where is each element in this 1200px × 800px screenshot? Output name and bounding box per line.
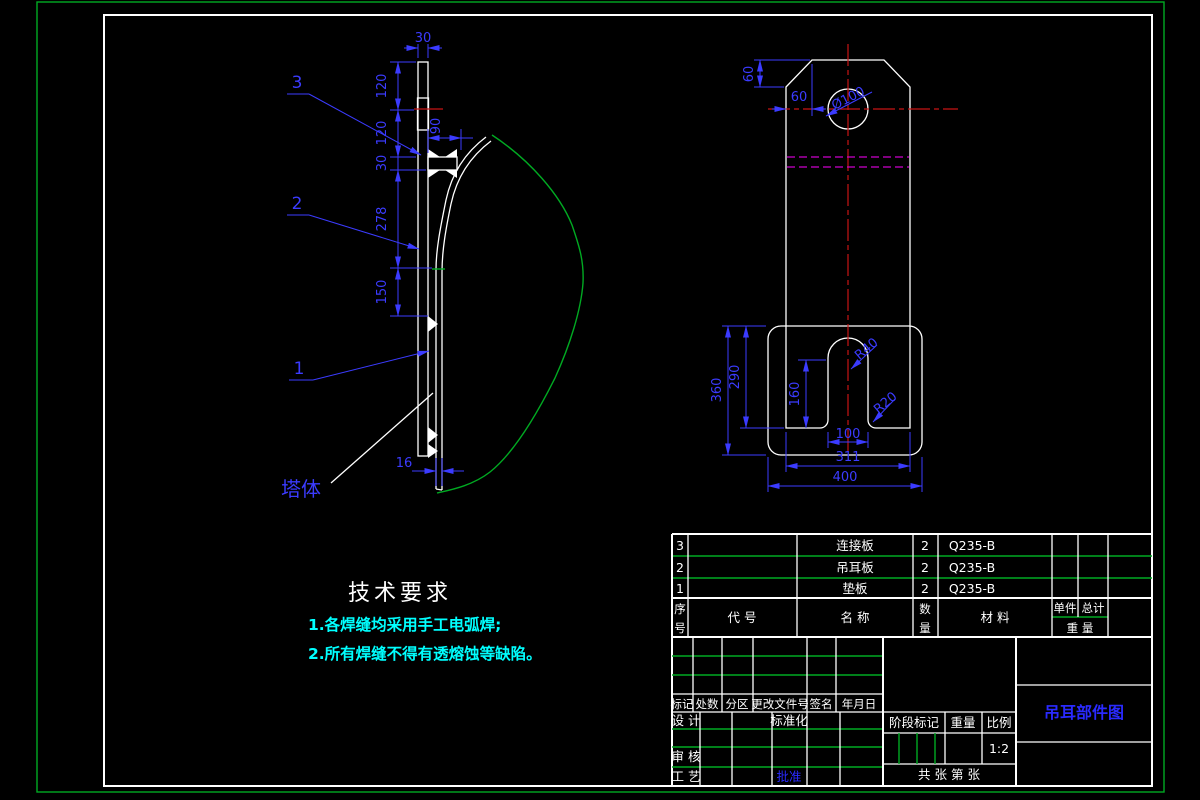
bom-header-weight: 重 量 bbox=[1067, 621, 1094, 635]
tech-req-item-1: 1.各焊缝均采用手工电弧焊; bbox=[308, 615, 501, 634]
dim-text-r20: R20 bbox=[871, 389, 900, 417]
dim-text-150: 150 bbox=[375, 280, 390, 305]
lug-plate-section bbox=[418, 62, 428, 456]
drawing-title: 吊耳部件图 bbox=[1044, 703, 1124, 722]
rev-header-zone: 分区 bbox=[726, 697, 749, 711]
bom-row-2: 2 吊耳板 2 Q235-B bbox=[676, 560, 995, 575]
dim-text-60h: 60 bbox=[791, 90, 808, 105]
dim-text-30: 30 bbox=[375, 155, 390, 172]
bom-header-no-bottom: 号 bbox=[674, 621, 686, 635]
bom-header-qty-top: 数 bbox=[919, 602, 931, 616]
bom-header-material: 材 料 bbox=[981, 610, 1010, 625]
bom-row-3: 3 连接板 2 Q235-B bbox=[676, 538, 995, 553]
dim-text-60v: 60 bbox=[742, 66, 757, 83]
stage-weight-scale: 阶段标记 重量 比例 1:2 共 张 第 张 bbox=[889, 715, 1012, 782]
tech-req-item-2: 2.所有焊缝不得有透熔蚀等缺陷。 bbox=[308, 644, 542, 663]
bom-name: 垫板 bbox=[842, 581, 868, 596]
bom-material: Q235-B bbox=[949, 581, 995, 596]
dim-text-16: 16 bbox=[396, 456, 413, 471]
stage-mark-label: 阶段标记 bbox=[889, 715, 940, 730]
dim-r20: R20 bbox=[871, 389, 900, 422]
design-label: 设 计 bbox=[672, 713, 701, 728]
rev-header-mark: 标记 bbox=[671, 697, 694, 711]
item-labels: 3 2 1 塔体 bbox=[281, 73, 433, 501]
dim-text-290: 290 bbox=[728, 365, 743, 390]
bom-name: 连接板 bbox=[836, 538, 874, 553]
dim-90: 90 bbox=[428, 118, 473, 153]
bom-material: Q235-B bbox=[949, 538, 995, 553]
tech-req-title: 技术要求 bbox=[348, 581, 452, 606]
dim-text-100: 100 bbox=[836, 427, 861, 442]
dim-top-width: 30 bbox=[404, 31, 442, 58]
bom-qty: 2 bbox=[921, 538, 929, 553]
scale-value: 1:2 bbox=[989, 741, 1009, 756]
role-cells: 设 计 标准化 审 核 工 艺 批准 bbox=[672, 713, 809, 784]
dim-360: 360 bbox=[710, 326, 766, 455]
revision-header-row: 标记 处数 分区 更改文件号 签名 年月日 bbox=[671, 697, 877, 711]
cad-drawing-sheet: 30 120 120 30 278 150 90 bbox=[0, 0, 1200, 800]
bom-header: 序 号 代 号 名 称 数 量 材 料 单件 总计 重 量 bbox=[674, 601, 1105, 635]
dim-text-360: 360 bbox=[710, 378, 725, 403]
standardization-label: 标准化 bbox=[770, 713, 808, 728]
sheet-border bbox=[37, 2, 1164, 792]
dim-text-30-top: 30 bbox=[415, 31, 432, 46]
approve-label: 批准 bbox=[776, 769, 801, 784]
bom-grid bbox=[672, 534, 1152, 786]
bom-no: 3 bbox=[676, 538, 684, 553]
item-label-2: 2 bbox=[292, 194, 303, 214]
dim-r40: R40 bbox=[851, 335, 881, 369]
tower-label: 塔体 bbox=[281, 477, 321, 501]
check-label: 审 核 bbox=[672, 749, 701, 764]
dim-text-120a: 120 bbox=[375, 74, 390, 99]
right-view: 60 60 Ø100 360 290 bbox=[710, 44, 958, 492]
dim-160: 160 bbox=[788, 360, 826, 428]
bom-table: 3 连接板 2 Q235-B 2 吊耳板 2 Q235-B 1 垫板 2 Q23… bbox=[672, 534, 1152, 786]
title-block: 标记 处数 分区 更改文件号 签名 年月日 设 计 标准化 审 核 工 艺 批准… bbox=[671, 637, 1153, 786]
dim-290: 290 bbox=[728, 326, 784, 428]
backing-plate-edge bbox=[436, 137, 491, 490]
dim-text-278: 278 bbox=[375, 207, 390, 232]
bom-header-unit: 单件 bbox=[1054, 601, 1077, 615]
dim-text-120b: 120 bbox=[375, 121, 390, 146]
rev-header-date: 年月日 bbox=[842, 697, 877, 711]
bom-no: 2 bbox=[676, 560, 684, 575]
sheet-count: 共 张 第 张 bbox=[918, 767, 980, 782]
bom-material: Q235-B bbox=[949, 560, 995, 575]
lug-plate-break bbox=[418, 98, 429, 130]
bom-qty: 2 bbox=[921, 581, 929, 596]
bom-header-total: 总计 bbox=[1082, 601, 1105, 615]
bom-header-code: 代 号 bbox=[728, 610, 757, 625]
bom-header-qty-bottom: 量 bbox=[919, 621, 931, 635]
bom-row-1: 1 垫板 2 Q235-B bbox=[676, 581, 995, 596]
scale-label: 比例 bbox=[986, 715, 1011, 730]
left-view: 30 120 120 30 278 150 90 bbox=[281, 31, 583, 501]
item-label-1: 1 bbox=[294, 359, 305, 379]
process-label: 工 艺 bbox=[672, 769, 701, 784]
bom-name: 吊耳板 bbox=[836, 560, 874, 575]
dim-text-160: 160 bbox=[788, 382, 803, 407]
rev-header-count: 处数 bbox=[696, 697, 719, 711]
dim-chain-left: 120 120 30 278 150 bbox=[375, 62, 432, 316]
dim-16: 16 bbox=[396, 456, 464, 486]
bom-header-name: 名 称 bbox=[841, 610, 870, 625]
dim-text-400: 400 bbox=[833, 470, 858, 485]
weight-label: 重量 bbox=[950, 715, 975, 730]
item-label-3: 3 bbox=[292, 73, 303, 93]
dim-60h: 60 bbox=[772, 64, 826, 116]
bom-no: 1 bbox=[676, 581, 684, 596]
rev-header-doc-no: 更改文件号 bbox=[751, 697, 809, 711]
bom-qty: 2 bbox=[921, 560, 929, 575]
technical-requirements: 技术要求 1.各焊缝均采用手工电弧焊; 2.所有焊缝不得有透熔蚀等缺陷。 bbox=[308, 581, 542, 663]
connecting-plate-section bbox=[428, 157, 457, 170]
tower-shell-curve bbox=[437, 135, 583, 493]
dim-text-90: 90 bbox=[429, 118, 444, 135]
bom-header-no-top: 序 bbox=[674, 602, 686, 616]
dim-text-311: 311 bbox=[836, 450, 861, 465]
rev-header-signature: 签名 bbox=[810, 697, 833, 711]
